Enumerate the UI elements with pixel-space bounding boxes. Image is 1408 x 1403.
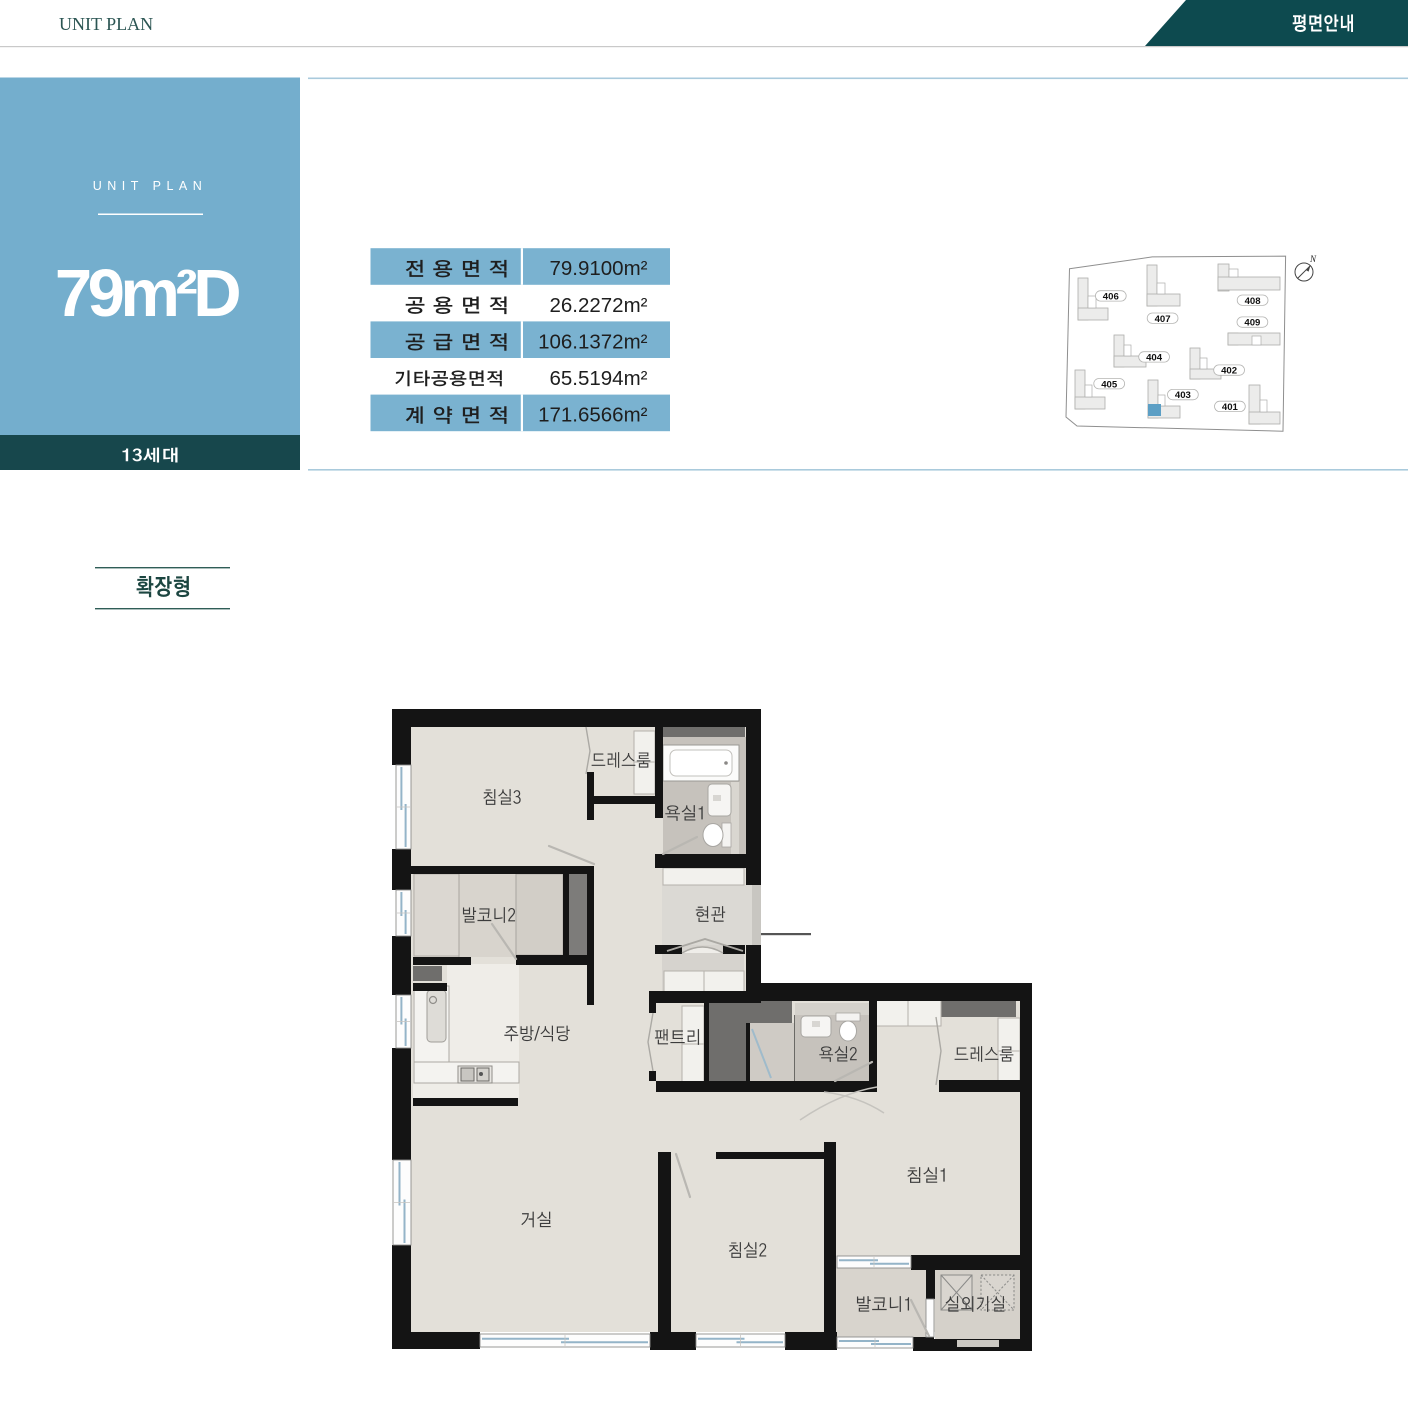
svg-text:106.1372m²: 106.1372m² (538, 330, 648, 353)
svg-text:402: 402 (1221, 366, 1237, 377)
svg-text:406: 406 (1103, 292, 1119, 303)
svg-text:404: 404 (1146, 353, 1163, 364)
svg-text:65.5194m²: 65.5194m² (549, 367, 647, 390)
svg-text:UNIT PLAN: UNIT PLAN (93, 179, 208, 193)
svg-text:403: 403 (1175, 390, 1191, 401)
svg-text:UNIT PLAN: UNIT PLAN (59, 14, 153, 34)
svg-text:401: 401 (1222, 402, 1239, 413)
svg-text:405: 405 (1101, 379, 1118, 390)
svg-text:409: 409 (1244, 318, 1260, 329)
svg-text:408: 408 (1245, 296, 1262, 307)
svg-text:171.6566m²: 171.6566m² (538, 404, 648, 427)
svg-text:26.2272m²: 26.2272m² (549, 294, 647, 317)
svg-text:N: N (1309, 254, 1317, 264)
svg-text:407: 407 (1155, 314, 1171, 325)
svg-text:79m²D: 79m²D (55, 256, 239, 331)
svg-text:79.9100m²: 79.9100m² (549, 257, 647, 280)
